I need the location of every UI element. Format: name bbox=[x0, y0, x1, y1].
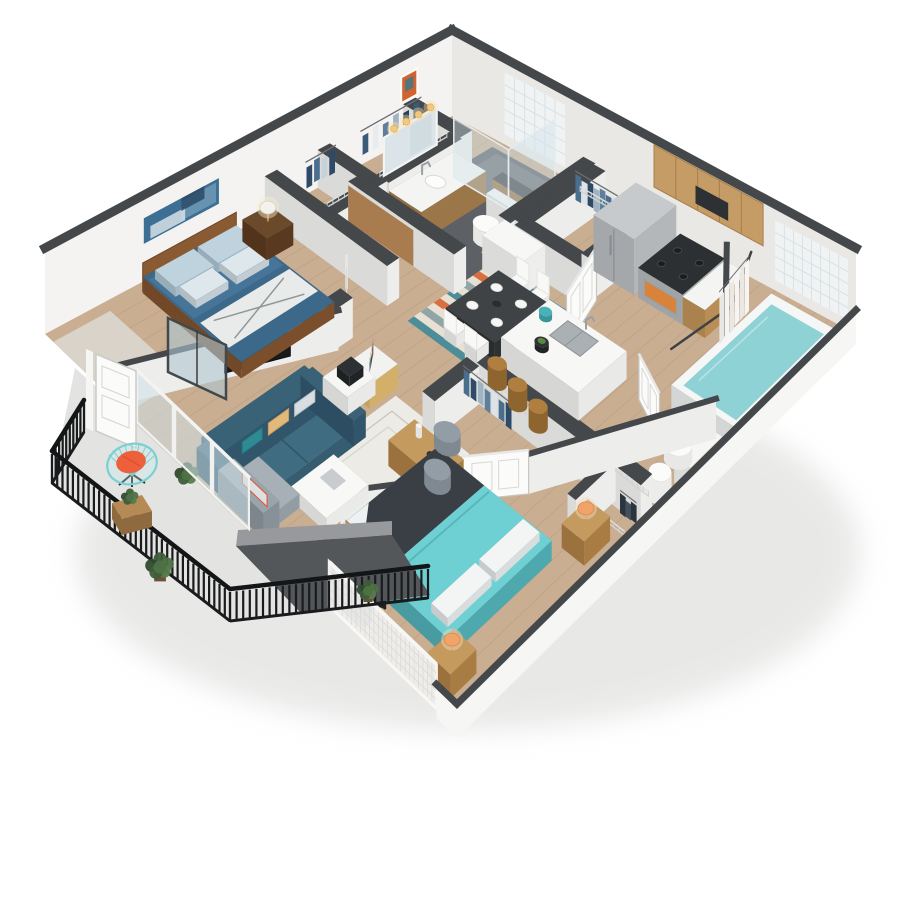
apartment-3d-floorplan bbox=[0, 0, 900, 900]
island-bowl-teal bbox=[539, 307, 552, 323]
stove-burner-1 bbox=[673, 248, 681, 254]
dresser-decor-vase bbox=[416, 423, 422, 438]
stool-2 bbox=[508, 377, 528, 412]
pouf-1 bbox=[434, 421, 461, 457]
entry-door-frame bbox=[86, 349, 93, 431]
stool-1 bbox=[487, 356, 507, 391]
stove-burner-2 bbox=[657, 261, 665, 267]
floorplan-stage bbox=[0, 0, 900, 900]
stove-burner-4 bbox=[679, 274, 687, 280]
stove-burner-3 bbox=[695, 260, 703, 266]
stool-3 bbox=[528, 399, 548, 434]
